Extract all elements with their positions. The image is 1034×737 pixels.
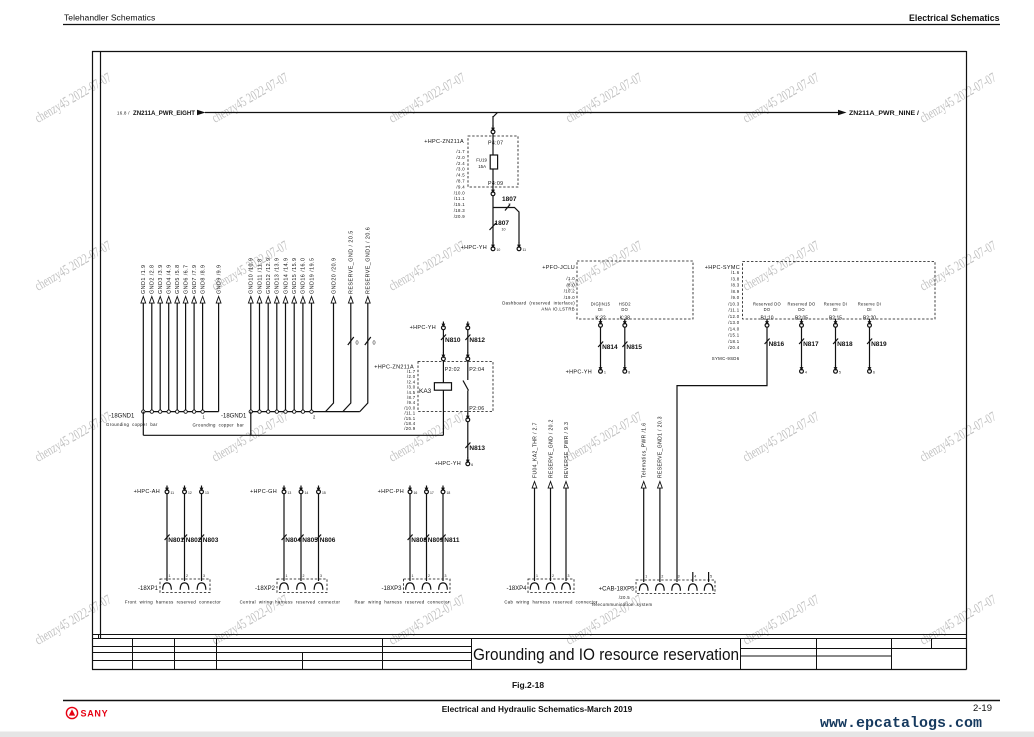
svg-text:-18GND1: -18GND1 [109, 414, 135, 420]
svg-text:14: 14 [305, 491, 309, 495]
svg-text:/2.0: /2.0 [456, 155, 465, 160]
svg-text:/20.5: /20.5 [619, 595, 631, 600]
svg-text:GND15 /15.9: GND15 /15.9 [292, 258, 298, 294]
svg-text:KA3: KA3 [419, 388, 432, 395]
svg-text:/10.0: /10.0 [454, 190, 466, 195]
svg-text:12: 12 [188, 491, 192, 495]
svg-text:/8.9: /8.9 [731, 289, 740, 294]
svg-text:GND20 /20.9: GND20 /20.9 [331, 258, 337, 294]
svg-text:P2:04: P2:04 [469, 367, 484, 373]
svg-text:Central wiring harness reserve: Central wiring harness reserved connecto… [240, 600, 341, 605]
svg-text:ZN211A_PWR_NINE /: ZN211A_PWR_NINE / [849, 110, 919, 117]
svg-text:Fig.2-18: Fig.2-18 [512, 680, 544, 690]
svg-text:GND8 /8.9: GND8 /8.9 [200, 264, 206, 294]
svg-text:10: 10 [497, 248, 501, 252]
svg-text:N814: N814 [602, 344, 618, 351]
svg-text:RESERVE_GND / 20.2: RESERVE_GND / 20.2 [548, 419, 554, 478]
svg-text:+HPC-GH: +HPC-GH [250, 489, 277, 495]
svg-text:6: 6 [471, 463, 473, 467]
svg-text:GND14 /14.9: GND14 /14.9 [283, 258, 289, 294]
svg-text:+HPC-PH: +HPC-PH [378, 489, 404, 495]
svg-text:/10.3: /10.3 [728, 301, 740, 306]
svg-text:11: 11 [523, 248, 527, 252]
svg-text:/18.3: /18.3 [454, 208, 466, 213]
svg-text:GND7 /7.9: GND7 /7.9 [192, 264, 198, 294]
svg-text:Grounding copper bar: Grounding copper bar [106, 422, 158, 427]
svg-text:0: 0 [356, 341, 359, 347]
svg-text:+HPC-YH: +HPC-YH [410, 325, 436, 331]
svg-text:Grounding copper bar: Grounding copper bar [193, 423, 245, 428]
svg-text:1: 1 [203, 415, 206, 420]
svg-text:/1.6: /1.6 [731, 270, 740, 275]
svg-text:17: 17 [430, 491, 434, 495]
svg-text:N815: N815 [626, 344, 642, 351]
svg-text:5: 5 [839, 371, 841, 375]
svg-text:N801: N801 [168, 537, 184, 544]
svg-text:/20.4: /20.4 [728, 345, 740, 350]
svg-text:1: 1 [536, 574, 538, 578]
svg-text:+HPC-ZN211A: +HPC-ZN211A [424, 139, 464, 145]
svg-text:5: 5 [710, 575, 712, 579]
svg-text:18: 18 [447, 491, 451, 495]
svg-text:/8.3: /8.3 [731, 283, 740, 288]
svg-text:GND19 /19.5: GND19 /19.5 [309, 258, 315, 294]
svg-text:GND12 /12.9: GND12 /12.9 [266, 258, 272, 294]
svg-text:SANY: SANY [81, 709, 109, 719]
svg-text:DO: DO [621, 307, 628, 312]
svg-text:N802: N802 [186, 537, 202, 544]
svg-text:GND4 /4.9: GND4 /4.9 [167, 264, 173, 294]
svg-text:Dashboard (reserved interface): Dashboard (reserved interface) [502, 301, 575, 306]
svg-text:GND6 /6.7: GND6 /6.7 [183, 264, 189, 294]
svg-text:N818: N818 [837, 341, 853, 348]
svg-text:4: 4 [805, 371, 807, 375]
svg-text:8: 8 [628, 371, 630, 375]
svg-text:/3.8: /3.8 [731, 276, 740, 281]
svg-text:2: 2 [303, 574, 305, 578]
svg-text:-18XP4: -18XP4 [506, 586, 527, 592]
svg-text:www.epcatalogs.com: www.epcatalogs.com [820, 715, 982, 732]
svg-text:/3.0: /3.0 [456, 167, 465, 172]
svg-text:1807: 1807 [495, 220, 510, 227]
svg-text:+HPC-YH: +HPC-YH [461, 245, 487, 251]
svg-text:/2.4: /2.4 [456, 161, 465, 166]
svg-text:N806: N806 [320, 537, 336, 544]
svg-text:/4.5: /4.5 [456, 173, 465, 178]
svg-text:N816: N816 [769, 341, 785, 348]
svg-text:DO: DO [798, 307, 805, 312]
svg-text:GND9 /9.9: GND9 /9.9 [216, 264, 222, 294]
svg-text:/1.0: /1.0 [566, 276, 575, 281]
svg-text:13: 13 [205, 491, 209, 495]
svg-text:N811: N811 [444, 537, 460, 544]
svg-text:15: 15 [322, 491, 326, 495]
svg-text:1: 1 [604, 371, 606, 375]
svg-text:Rear wiring harness reserved c: Rear wiring harness reserved connector [354, 600, 449, 605]
svg-text:HSD2: HSD2 [619, 302, 632, 307]
svg-text:13: 13 [288, 491, 292, 495]
svg-text:/14.0: /14.0 [728, 326, 740, 331]
svg-text:/20.9: /20.9 [404, 426, 416, 431]
svg-text:-18GND1: -18GND1 [221, 414, 247, 420]
svg-text:Telematics_PWR /1.6: Telematics_PWR /1.6 [642, 423, 648, 478]
svg-text:1: 1 [412, 574, 414, 578]
svg-text:4: 4 [694, 575, 696, 579]
svg-text:/11.1: /11.1 [729, 308, 740, 313]
svg-text:+HPC-YH: +HPC-YH [566, 370, 592, 376]
svg-text:FU19: FU19 [476, 158, 487, 163]
svg-text:1: 1 [169, 574, 171, 578]
svg-text:DIG[IN15: DIG[IN15 [591, 302, 611, 307]
svg-text:RESERVE_GND / 20.5: RESERVE_GND / 20.5 [349, 230, 355, 294]
svg-text:P2:06: P2:06 [469, 406, 484, 412]
svg-text:/15.1: /15.1 [728, 333, 740, 338]
svg-text:/11.1: /11.1 [454, 196, 465, 201]
svg-text:Reserve DI: Reserve DI [824, 302, 847, 307]
svg-text:3: 3 [678, 575, 680, 579]
svg-text:3: 3 [320, 574, 322, 578]
svg-text:16.8 /: 16.8 / [117, 111, 130, 116]
svg-text:ANA IO.LSTRB: ANA IO.LSTRB [541, 307, 575, 312]
svg-text:2: 2 [661, 575, 663, 579]
svg-text:2: 2 [552, 574, 554, 578]
svg-text:+HPC-YH: +HPC-YH [435, 461, 461, 467]
svg-text:RESERVE_GND1 / 20.6: RESERVE_GND1 / 20.6 [366, 227, 372, 294]
svg-text:1: 1 [645, 575, 647, 579]
svg-text:/9.0: /9.0 [731, 295, 740, 300]
svg-text:GND13 /13.9: GND13 /13.9 [275, 258, 281, 294]
svg-text:P2:02: P2:02 [445, 367, 460, 373]
svg-text:Telehandler Schematics: Telehandler Schematics [64, 13, 155, 23]
svg-text:DI: DI [867, 307, 872, 312]
svg-text:/19.0: /19.0 [564, 295, 576, 300]
svg-text:RESERVE_GND1 / 20.3: RESERVE_GND1 / 20.3 [658, 416, 664, 478]
svg-text:6: 6 [873, 371, 875, 375]
svg-text:/9.4: /9.4 [456, 184, 465, 189]
svg-text:N812: N812 [469, 337, 485, 344]
svg-text:/1.7: /1.7 [456, 149, 465, 154]
svg-text:10: 10 [502, 228, 506, 232]
svg-text:GND11 /11.8: GND11 /11.8 [257, 258, 263, 294]
svg-text:GND10 /10.9: GND10 /10.9 [249, 258, 255, 294]
svg-text:15A: 15A [478, 164, 486, 169]
svg-text:N805: N805 [302, 537, 318, 544]
svg-text:N803: N803 [203, 537, 219, 544]
svg-text:DO: DO [764, 307, 771, 312]
svg-text:2: 2 [313, 415, 316, 420]
svg-text:1: 1 [286, 574, 288, 578]
svg-text:GND1 /1.9: GND1 /1.9 [141, 264, 147, 294]
svg-text:Electrical and Hydraulic Schem: Electrical and Hydraulic Schematics-Marc… [442, 704, 633, 714]
svg-text:/10.2: /10.2 [564, 289, 576, 294]
svg-text:2: 2 [428, 574, 430, 578]
svg-text:DI: DI [833, 307, 838, 312]
svg-text:N804: N804 [285, 537, 301, 544]
svg-text:0: 0 [373, 341, 376, 347]
svg-text:P4:07: P4:07 [488, 141, 503, 147]
svg-text:N817: N817 [803, 341, 819, 348]
svg-text:/8.0: /8.0 [566, 282, 575, 287]
svg-text:3: 3 [445, 574, 447, 578]
svg-text:+CAB-18XP5: +CAB-18XP5 [599, 587, 636, 593]
svg-text:Telecommunication system: Telecommunication system [591, 602, 652, 607]
svg-text:11: 11 [171, 491, 175, 495]
svg-text:FU04_KA2_THR / 2.7: FU04_KA2_THR / 2.7 [532, 422, 538, 478]
svg-text:Cab wiring harness reserved co: Cab wiring harness reserved connector [504, 600, 598, 605]
svg-text:2-19: 2-19 [973, 703, 992, 714]
svg-text:GND3 /3.9: GND3 /3.9 [158, 264, 164, 294]
svg-text:Front wiring harness reserved: Front wiring harness reserved connector [125, 600, 221, 605]
svg-text:P4:09: P4:09 [488, 181, 503, 187]
svg-text:Electrical Schematics: Electrical Schematics [909, 13, 1000, 23]
svg-text:/18.1: /18.1 [728, 339, 740, 344]
svg-text:/15.1: /15.1 [454, 202, 466, 207]
svg-text:ZN211A_PWR_EIGHT: ZN211A_PWR_EIGHT [133, 110, 195, 117]
svg-text:N810: N810 [445, 337, 461, 344]
svg-text:Reserved DO: Reserved DO [753, 302, 781, 307]
svg-text:/13.0: /13.0 [728, 320, 740, 325]
svg-text:+HPC-AH: +HPC-AH [134, 489, 160, 495]
svg-text:/8.7: /8.7 [456, 179, 465, 184]
svg-text:GND5 /5.8: GND5 /5.8 [175, 264, 181, 294]
svg-text:N808: N808 [411, 537, 427, 544]
svg-text:-18XP3: -18XP3 [381, 586, 402, 592]
svg-text:Grounding and IO resource rese: Grounding and IO resource reservation [473, 646, 739, 664]
svg-text:16: 16 [414, 491, 418, 495]
svg-text:2: 2 [186, 574, 188, 578]
svg-text:DI: DI [598, 307, 603, 312]
svg-text:/20.9: /20.9 [454, 214, 466, 219]
svg-text:3: 3 [203, 574, 205, 578]
svg-text:+PFO-JCLU: +PFO-JCLU [542, 265, 575, 271]
svg-text:N809: N809 [428, 537, 444, 544]
svg-text:Reserved DO: Reserved DO [787, 302, 815, 307]
svg-text:REVERSE_PWR / 9.3: REVERSE_PWR / 9.3 [564, 422, 570, 478]
svg-text:3: 3 [568, 574, 570, 578]
svg-text:SYMC-9SD6: SYMC-9SD6 [712, 356, 740, 361]
svg-text:-18XP1: -18XP1 [138, 586, 159, 592]
svg-text:GND16 /16.0: GND16 /16.0 [301, 258, 307, 294]
svg-text:Reserve DI: Reserve DI [858, 302, 881, 307]
svg-text:N813: N813 [469, 445, 485, 452]
svg-text:-18XP2: -18XP2 [255, 586, 276, 592]
svg-text:GND2 /2.8: GND2 /2.8 [150, 264, 156, 294]
svg-text:N819: N819 [871, 341, 887, 348]
svg-text:/12.0: /12.0 [728, 314, 740, 319]
